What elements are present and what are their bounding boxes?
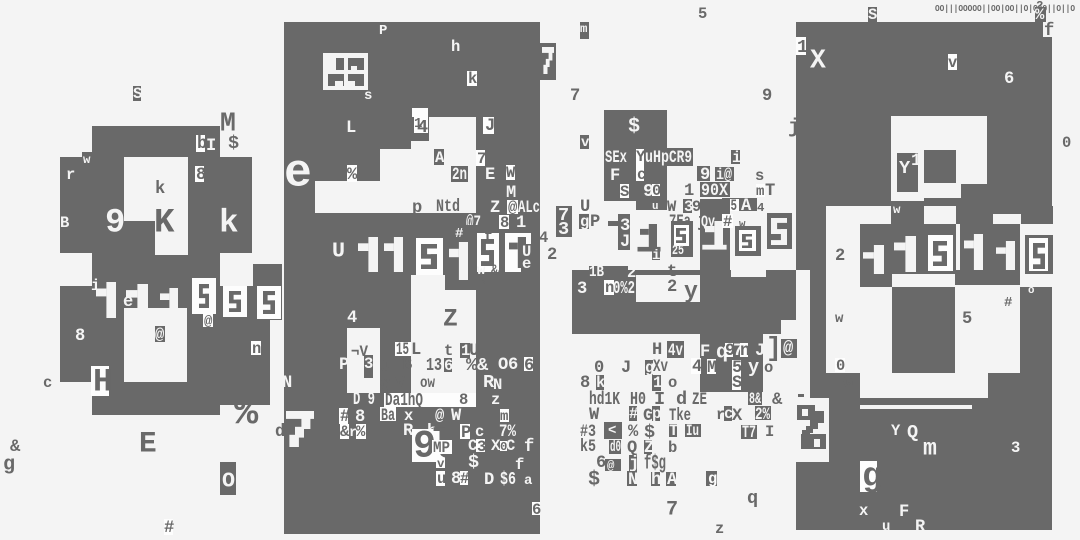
svg-text:#: # [723,213,732,231]
svg-text:u: u [882,519,890,535]
svg-text:u: u [652,201,658,213]
svg-text:m: m [580,22,587,36]
svg-text:T: T [669,422,678,440]
svg-text:g: g [580,213,589,231]
svg-text:y: y [684,279,698,305]
svg-text:w: w [835,311,844,327]
svg-text:R: R [915,518,926,537]
svg-text:1B: 1B [589,263,604,281]
svg-text:z: z [715,520,724,538]
svg-text:D: D [484,471,494,490]
svg-text:e: e [284,146,312,199]
svg-text:D 9: D 9 [353,389,375,410]
svg-text:N: N [628,471,638,490]
svg-text:e: e [522,255,531,273]
svg-text:f: f [1044,22,1054,41]
svg-text:k: k [155,180,165,199]
svg-text:q: q [747,488,758,509]
svg-text:v: v [948,54,958,72]
svg-text:0: 0 [652,182,661,200]
svg-text:%: % [356,423,366,441]
svg-text:i: i [732,149,741,167]
svg-text:8: 8 [500,214,509,232]
svg-text:4: 4 [692,358,702,377]
svg-text:3: 3 [558,219,569,240]
svg-text:h: h [651,471,661,490]
svg-text:y: y [748,357,759,378]
svg-text:&4: &4 [491,262,505,280]
svg-text:<: < [608,423,616,439]
svg-text:P: P [339,356,349,375]
svg-text:25: 25 [672,243,684,259]
svg-text:B: B [60,214,69,232]
svg-text:x: x [859,502,868,520]
svg-text:S: S [620,183,629,201]
svg-text:E: E [139,428,157,461]
svg-text:k5: k5 [580,438,596,457]
svg-text:Q: Q [907,422,918,443]
svg-text:o: o [764,359,773,377]
svg-text:Ba: Ba [381,407,395,426]
svg-text:L: L [411,341,421,360]
svg-text:3: 3 [364,355,373,373]
svg-text:7: 7 [666,499,678,522]
svg-text:f: f [524,438,534,457]
svg-text:d: d [275,423,285,442]
svg-text:X: X [810,46,826,76]
svg-text:2: 2 [667,278,677,297]
svg-text:U: U [332,239,345,264]
svg-text:0: 0 [1062,134,1071,152]
svg-text:13: 13 [426,355,442,376]
svg-text:3: 3 [1011,439,1020,457]
svg-text:g: g [3,454,15,477]
svg-text:4v: 4v [668,342,683,361]
svg-text:T: T [765,182,775,201]
svg-text:P: P [379,23,387,39]
svg-text:H: H [93,364,113,401]
svg-text:@: @ [155,326,164,344]
svg-text:J: J [485,117,495,136]
svg-text:o: o [1028,285,1034,297]
svg-text:1: 1 [516,214,526,233]
svg-text:F: F [610,167,620,186]
svg-text:E: E [485,166,495,185]
svg-text:P: P [590,213,600,232]
svg-text:f: f [515,456,524,474]
svg-text:t: t [484,228,493,246]
svg-text:h: h [451,38,460,56]
svg-text:6: 6 [532,501,541,519]
svg-text:5: 5 [962,310,972,329]
svg-text:6: 6 [508,356,518,375]
svg-text:C: C [506,437,515,455]
svg-text:0%2: 0%2 [613,278,635,299]
svg-text:d0: d0 [610,438,621,456]
svg-text:I: I [206,137,216,156]
svg-text:Z: Z [443,306,458,334]
svg-text:Z: Z [490,199,500,218]
svg-text:i: i [652,248,660,264]
svg-text:4: 4 [757,201,765,215]
svg-text:4: 4 [347,309,357,328]
svg-text:@: @ [783,340,793,359]
svg-text:n: n [252,340,261,358]
svg-text:S: S [868,6,877,24]
svg-text:$6: $6 [500,469,516,490]
svg-text:r: r [66,166,75,184]
svg-text:&: & [772,391,783,410]
svg-text:S: S [732,374,742,393]
svg-text:m: m [756,184,764,200]
svg-text:6: 6 [444,357,453,375]
svg-text:6: 6 [524,357,534,376]
svg-text:$: $ [468,452,479,473]
svg-text:2: 2 [547,246,557,265]
svg-text:4: 4 [539,229,548,247]
svg-text:F: F [899,503,909,522]
svg-text:v: v [437,457,445,471]
svg-text:ZE: ZE [692,391,707,410]
svg-text:u: u [437,470,446,488]
svg-text:7: 7 [570,87,580,106]
svg-text:m: m [923,436,937,462]
svg-text:@: @ [204,314,213,330]
svg-text:g: g [708,470,717,488]
svg-text:W: W [506,164,516,182]
svg-text:$: $ [228,133,239,154]
svg-text:%: % [347,166,358,185]
svg-text:I: I [765,423,774,441]
svg-text:T7: T7 [742,424,756,443]
svg-text:J: J [620,233,630,252]
svg-text:S: S [133,85,142,103]
svg-text:6: 6 [1004,70,1014,89]
svg-text:1: 1 [797,37,808,58]
svg-text:B: B [402,356,412,375]
svg-text:Iu: Iu [686,422,699,440]
svg-text:#: # [1004,295,1012,311]
svg-text:L: L [346,119,356,138]
svg-text:3: 3 [577,280,587,299]
svg-text:z: z [491,391,500,409]
svg-text:OO|||OOOOO||OO|OO||O|C9O||O||O: OO|||OOOOO||OO|OO||O|C9O||O||O [935,3,1075,14]
svg-text:2: 2 [835,247,845,266]
svg-text:$: $ [588,469,600,492]
svg-text:s: s [755,167,764,185]
svg-text:A: A [741,197,752,216]
svg-text:M: M [707,359,717,378]
svg-text:k: k [468,70,477,88]
svg-text:SEx: SEx [605,149,627,168]
svg-text:a: a [524,473,533,489]
svg-text:O: O [498,356,508,375]
svg-text:9: 9 [105,205,125,243]
svg-text:8: 8 [196,166,206,185]
svg-text:5: 5 [698,5,707,23]
svg-text:#: # [455,226,463,242]
svg-text:MP: MP [433,439,450,457]
svg-text:K: K [154,205,175,243]
svg-text:G: G [435,164,445,183]
svg-text:1: 1 [911,152,921,171]
svg-text:A: A [667,471,678,490]
svg-text:uHp: uHp [645,149,669,168]
svg-text:.7: .7 [477,276,486,294]
svg-text:g: g [862,459,882,497]
svg-text:O: O [222,469,235,494]
svg-text:c: c [43,374,52,392]
svg-text:0: 0 [836,357,845,375]
svg-text:k: k [219,205,239,242]
svg-text:w: w [893,203,901,217]
svg-text:b: b [668,439,677,457]
svg-text:G: G [843,374,853,393]
svg-text:9: 9 [762,87,772,106]
svg-text:CR9: CR9 [669,149,692,168]
svg-text:Y: Y [891,422,901,440]
svg-text:N: N [282,374,292,393]
svg-text:J: J [621,359,631,378]
svg-text:w: w [83,153,91,167]
svg-text:4: 4 [417,117,428,138]
svg-text:v: v [581,135,590,151]
svg-text:8: 8 [75,327,85,346]
svg-text:p: p [652,405,661,423]
svg-text:#: # [164,519,174,538]
svg-text:#: # [629,405,638,423]
svg-text:Y: Y [899,158,911,179]
svg-text:@: @ [607,459,615,473]
svg-text:s: s [364,88,372,104]
svg-text:$: $ [628,116,640,139]
svg-text:#: # [460,470,469,488]
